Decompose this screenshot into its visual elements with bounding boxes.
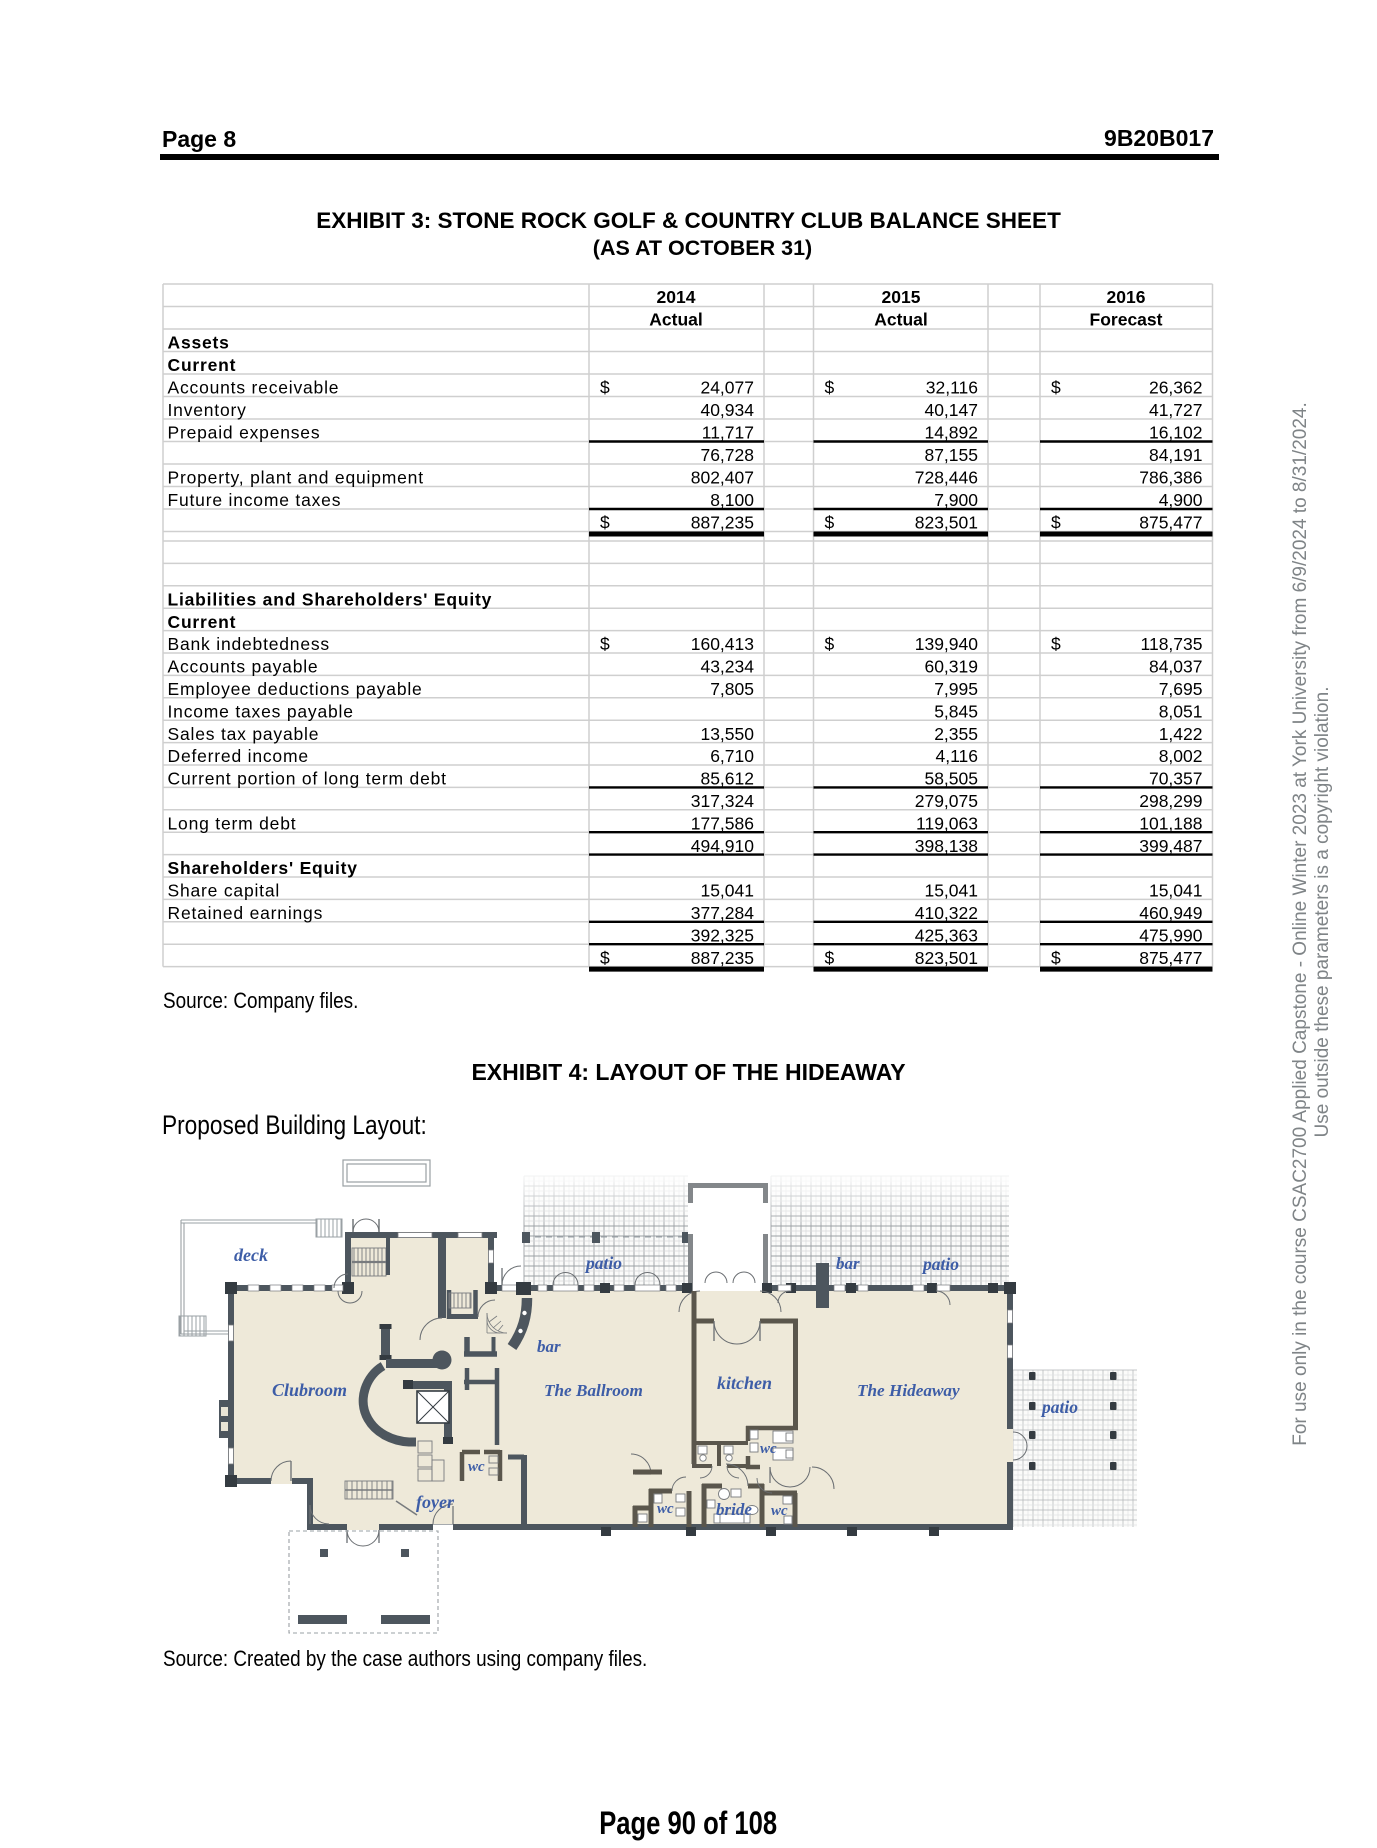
svg-text:101,188: 101,188: [1139, 813, 1202, 833]
svg-text:Income taxes payable: Income taxes payable: [168, 701, 354, 721]
svg-text:Current portion of long term d: Current portion of long term debt: [168, 769, 447, 789]
svg-text:Bank indebtedness: Bank indebtedness: [168, 634, 330, 654]
svg-text:823,501: 823,501: [915, 513, 978, 533]
svg-text:Clubroom: Clubroom: [272, 1380, 347, 1400]
svg-text:875,477: 875,477: [1139, 948, 1202, 968]
svg-text:40,147: 40,147: [924, 400, 978, 420]
svg-text:Share capital: Share capital: [168, 881, 281, 901]
svg-text:16,102: 16,102: [1149, 423, 1203, 443]
svg-text:bar: bar: [537, 1337, 561, 1356]
svg-text:139,940: 139,940: [915, 634, 979, 654]
svg-text:425,363: 425,363: [915, 925, 978, 945]
svg-text:2015: 2015: [882, 287, 921, 307]
svg-text:15,041: 15,041: [1149, 881, 1203, 901]
svg-text:$: $: [825, 513, 835, 533]
svg-text:deck: deck: [234, 1245, 268, 1265]
svg-text:1,422: 1,422: [1159, 724, 1203, 744]
svg-text:119,063: 119,063: [916, 813, 978, 833]
svg-text:patio: patio: [1040, 1397, 1078, 1417]
svg-text:160,413: 160,413: [691, 634, 754, 654]
svg-text:patio: patio: [921, 1254, 959, 1274]
svg-text:475,990: 475,990: [1139, 925, 1203, 945]
svg-text:8,100: 8,100: [710, 490, 754, 510]
svg-text:84,191: 84,191: [1149, 445, 1203, 465]
svg-text:24,077: 24,077: [700, 378, 754, 398]
svg-text:6,710: 6,710: [710, 746, 754, 766]
svg-text:87,155: 87,155: [924, 445, 978, 465]
svg-text:$: $: [600, 634, 610, 654]
svg-text:8,051: 8,051: [1159, 701, 1203, 721]
svg-text:Accounts receivable: Accounts receivable: [168, 378, 340, 398]
svg-text:7,695: 7,695: [1159, 679, 1203, 699]
svg-text:wc: wc: [468, 1459, 485, 1475]
svg-text:13,550: 13,550: [700, 724, 754, 744]
svg-text:Future income taxes: Future income taxes: [168, 490, 342, 510]
svg-text:Liabilities and Shareholders': Liabilities and Shareholders' Equity: [168, 589, 493, 609]
svg-text:298,299: 298,299: [1139, 791, 1202, 811]
svg-text:foyer: foyer: [416, 1492, 455, 1512]
svg-text:Sales tax payable: Sales tax payable: [168, 724, 320, 744]
svg-text:Actual: Actual: [874, 310, 927, 330]
svg-text:84,037: 84,037: [1149, 657, 1203, 677]
svg-text:Inventory: Inventory: [168, 400, 247, 420]
svg-text:2014: 2014: [657, 287, 696, 307]
svg-text:4,116: 4,116: [936, 746, 979, 766]
svg-text:Property, plant and equipment: Property, plant and equipment: [168, 468, 424, 488]
svg-text:Forecast: Forecast: [1090, 310, 1163, 330]
svg-text:$: $: [825, 948, 835, 968]
svg-text:728,446: 728,446: [915, 468, 978, 488]
svg-text:The Ballroom: The Ballroom: [544, 1381, 643, 1400]
svg-text:14,892: 14,892: [924, 423, 978, 443]
svg-text:The Hideaway: The Hideaway: [857, 1381, 960, 1400]
svg-text:11,717: 11,717: [702, 423, 754, 443]
svg-text:Current: Current: [168, 612, 237, 632]
svg-text:887,235: 887,235: [691, 513, 754, 533]
svg-text:26,362: 26,362: [1149, 378, 1203, 398]
svg-text:60,319: 60,319: [924, 657, 978, 677]
svg-text:76,728: 76,728: [700, 445, 754, 465]
svg-text:$: $: [1051, 634, 1061, 654]
svg-text:317,324: 317,324: [691, 791, 755, 811]
svg-text:177,586: 177,586: [691, 813, 754, 833]
svg-text:8,002: 8,002: [1159, 746, 1203, 766]
svg-text:118,735: 118,735: [1141, 634, 1203, 654]
svg-text:15,041: 15,041: [924, 881, 978, 901]
svg-text:$: $: [825, 634, 835, 654]
svg-text:patio: patio: [584, 1253, 622, 1273]
svg-text:377,284: 377,284: [691, 903, 755, 923]
svg-text:2,355: 2,355: [934, 724, 978, 744]
svg-text:$: $: [1051, 378, 1061, 398]
svg-text:$: $: [600, 513, 610, 533]
svg-text:wc: wc: [760, 1441, 777, 1457]
svg-text:Actual: Actual: [649, 310, 702, 330]
svg-text:wc: wc: [771, 1503, 788, 1519]
svg-text:Long term debt: Long term debt: [168, 813, 297, 833]
svg-text:Retained earnings: Retained earnings: [168, 903, 324, 923]
svg-text:58,505: 58,505: [924, 769, 978, 789]
svg-text:Prepaid expenses: Prepaid expenses: [168, 423, 321, 443]
svg-text:70,357: 70,357: [1149, 769, 1203, 789]
svg-text:5,845: 5,845: [934, 701, 978, 721]
svg-text:7,805: 7,805: [710, 679, 754, 699]
svg-text:kitchen: kitchen: [717, 1373, 772, 1393]
svg-text:Deferred income: Deferred income: [168, 746, 309, 766]
svg-text:bar: bar: [836, 1254, 860, 1273]
svg-text:$: $: [600, 948, 610, 968]
svg-text:875,477: 875,477: [1139, 513, 1202, 533]
svg-text:7,900: 7,900: [934, 490, 978, 510]
svg-text:$: $: [1051, 948, 1061, 968]
svg-text:$: $: [600, 378, 610, 398]
svg-text:399,487: 399,487: [1139, 836, 1202, 856]
svg-text:15,041: 15,041: [700, 881, 754, 901]
svg-text:Shareholders' Equity: Shareholders' Equity: [168, 858, 358, 878]
svg-text:279,075: 279,075: [915, 791, 978, 811]
svg-text:887,235: 887,235: [691, 948, 754, 968]
svg-text:Assets: Assets: [168, 333, 230, 353]
svg-text:7,995: 7,995: [934, 679, 978, 699]
svg-text:Employee deductions payable: Employee deductions payable: [168, 679, 423, 699]
svg-text:43,234: 43,234: [700, 657, 754, 677]
svg-text:40,934: 40,934: [700, 400, 754, 420]
svg-text:Accounts payable: Accounts payable: [168, 657, 319, 677]
svg-text:392,325: 392,325: [691, 925, 754, 945]
svg-text:$: $: [825, 378, 835, 398]
svg-text:41,727: 41,727: [1149, 400, 1203, 420]
svg-text:823,501: 823,501: [915, 948, 978, 968]
svg-text:786,386: 786,386: [1139, 468, 1202, 488]
svg-text:85,612: 85,612: [700, 769, 754, 789]
svg-text:410,322: 410,322: [915, 903, 978, 923]
svg-text:398,138: 398,138: [915, 836, 978, 856]
svg-text:802,407: 802,407: [691, 468, 754, 488]
svg-text:32,116: 32,116: [926, 378, 978, 398]
svg-text:4,900: 4,900: [1159, 490, 1203, 510]
svg-text:494,910: 494,910: [691, 836, 755, 856]
svg-text:460,949: 460,949: [1139, 903, 1202, 923]
svg-text:2016: 2016: [1107, 287, 1146, 307]
svg-text:bride: bride: [716, 1500, 752, 1519]
svg-text:wc: wc: [657, 1501, 674, 1517]
svg-text:$: $: [1051, 513, 1061, 533]
svg-text:Current: Current: [168, 355, 237, 375]
